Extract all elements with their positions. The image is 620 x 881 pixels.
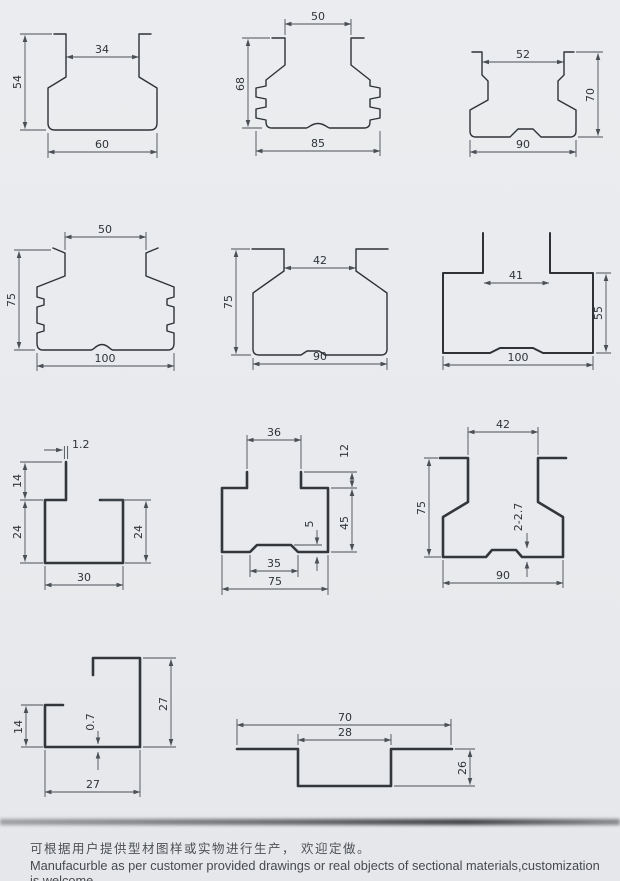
dim-label: 36 — [267, 426, 281, 439]
dim-label: 12 — [338, 444, 351, 458]
profile-diagram-3: 52 70 90 — [470, 48, 603, 157]
dimension-lines — [20, 34, 157, 158]
caption-chinese: 可根据用户提供型材图样或实物进行生产， 欢迎定做。 — [30, 838, 610, 857]
profile-diagram-5: 42 75 90 — [222, 249, 388, 370]
profile-outline — [443, 233, 593, 353]
dim-label: 0.7 — [84, 713, 97, 731]
dim-label: 34 — [95, 43, 109, 56]
caption-english: Manufacurble as per customer provided dr… — [30, 858, 610, 881]
profile-diagram-9: 42 75 2-2.7 90 — [415, 418, 566, 588]
profile-diagram-6: 41 55 100 — [443, 233, 611, 370]
dimension-lines — [20, 446, 151, 590]
profile-outline — [45, 462, 123, 563]
dim-label: 90 — [313, 350, 327, 363]
dim-label: 27 — [86, 778, 100, 791]
profile-outline — [470, 52, 576, 137]
dimension-lines — [470, 52, 603, 157]
dim-label: 52 — [516, 48, 530, 61]
dim-label: 100 — [95, 352, 116, 365]
profile-diagram-2: 50 68 85 — [234, 10, 380, 156]
profile-outline — [256, 38, 380, 128]
catalog-page: 34 54 60 50 68 85 52 70 90 — [0, 0, 620, 881]
dim-label: 75 — [222, 295, 235, 309]
dimension-lines — [231, 249, 387, 370]
dim-label: 70 — [584, 88, 597, 102]
dim-label: 90 — [496, 569, 510, 582]
dimension-lines — [242, 19, 380, 156]
separator-smudge-line — [0, 819, 620, 825]
dim-label: 24 — [11, 525, 24, 539]
dim-label: 85 — [311, 137, 325, 150]
dim-label: 75 — [5, 293, 18, 307]
profile-diagram-4: 50 75 100 — [5, 223, 174, 371]
dim-label: 35 — [267, 557, 281, 570]
footer-caption: 可根据用户提供型材图样或实物进行生产， 欢迎定做。 Manufacurble a… — [30, 838, 610, 881]
dim-label: 42 — [313, 254, 327, 267]
dim-label: 75 — [268, 575, 282, 588]
dim-label: 14 — [12, 720, 25, 734]
profile-diagram-8: 36 12 45 5 35 75 — [222, 426, 357, 595]
dim-label: 55 — [592, 306, 605, 320]
dim-label: 75 — [415, 501, 428, 515]
profile-diagram-1: 34 54 60 — [11, 34, 157, 158]
dim-label: 2-2.7 — [512, 503, 525, 531]
dim-label: 45 — [338, 516, 351, 530]
dim-label: 60 — [95, 138, 109, 151]
dimension-lines — [222, 435, 357, 595]
profile-outline — [237, 749, 452, 786]
dim-label: 42 — [496, 418, 510, 431]
technical-drawing-canvas: 34 54 60 50 68 85 52 70 90 — [0, 0, 620, 832]
dimension-lines — [237, 719, 475, 786]
dim-label: 90 — [516, 138, 530, 151]
dim-label: 5 — [303, 521, 316, 528]
dim-label: 30 — [77, 571, 91, 584]
profile-diagram-11: 70 28 26 — [237, 711, 475, 786]
profile-outline — [37, 248, 174, 350]
profile-outline — [222, 472, 328, 552]
dim-label: 50 — [98, 223, 112, 236]
dim-label: 14 — [11, 474, 24, 488]
dim-label: 68 — [234, 77, 247, 91]
profile-outline — [440, 458, 566, 557]
dim-label: 26 — [456, 761, 469, 775]
dim-label: 24 — [132, 525, 145, 539]
profile-diagram-10: 14 0.7 27 27 — [12, 658, 176, 797]
dim-label: 41 — [509, 269, 523, 282]
dim-label: 27 — [157, 697, 170, 711]
dim-label: 1.2 — [72, 438, 90, 451]
dim-label: 28 — [338, 726, 352, 739]
profile-diagram-7: 1.2 14 24 24 30 — [11, 438, 151, 590]
dim-label: 100 — [508, 351, 529, 364]
dim-label: 54 — [11, 75, 24, 89]
profile-outline — [45, 658, 140, 747]
dimension-lines — [424, 427, 563, 588]
dim-label: 70 — [338, 711, 352, 724]
dim-label: 50 — [311, 10, 325, 23]
